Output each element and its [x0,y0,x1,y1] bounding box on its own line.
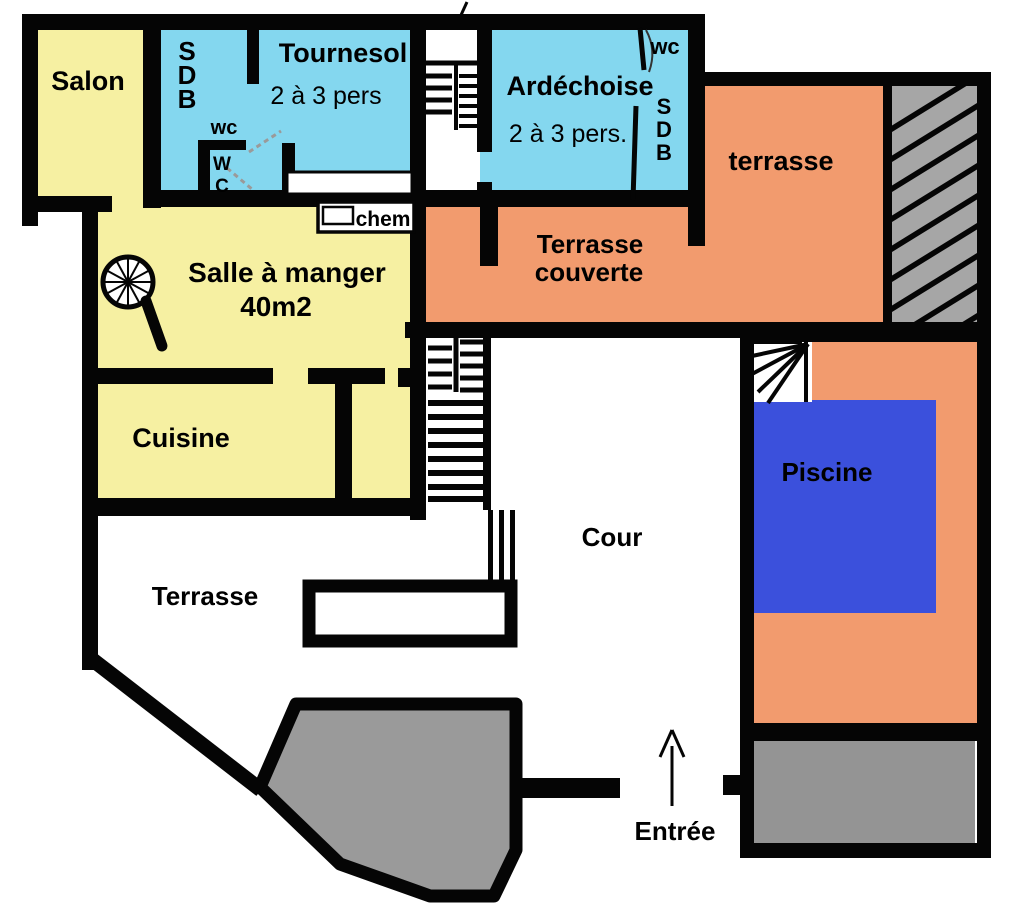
garage-area [753,741,975,843]
wall-left-outer [82,196,98,670]
wall-hatch-left [883,83,892,322]
wall-garage-bottom [740,843,990,858]
wall-wc-closet-top [198,140,246,150]
wall-pool-top [740,322,990,342]
swimming-pool [753,400,936,613]
wall-pantry-vertical [335,382,352,504]
wall-ardechoise-sdb-partition [633,106,636,200]
pool-label: Piscine [781,457,872,487]
wall-top [22,14,692,30]
bench-rectangle [309,586,511,641]
courtyard-staircase-icon [428,338,483,499]
wall-terrace-top [692,72,990,86]
floor-plan-canvas: Salon S D B wc W C Tournesol 2 à 3 pers … [0,0,1024,916]
dining-kitchen-area [96,196,412,502]
wall-garage-top [740,723,990,741]
wall-covered-terrace-stub [480,198,498,266]
wall-ardechoise-left-upper [477,22,492,152]
wc1-closet-w: W [213,154,231,175]
wall-entrance-stub [518,778,620,798]
tournesol-capacity: 2 à 3 pers [270,82,381,110]
wall-stair-right [483,335,491,510]
tournesol-label: Tournesol [279,38,408,68]
courtyard-label: Cour [582,522,643,552]
upper-terrace-label: terrasse [728,146,833,176]
wc2-label: wc [649,34,679,59]
floor-plan: Salon S D B wc W C Tournesol 2 à 3 pers … [0,0,1024,916]
top-stairwell-area [423,25,480,193]
entrance-label: Entrée [635,816,716,846]
pool-fan-staircase-icon [748,334,812,403]
wc1-label: wc [210,117,238,139]
salon-room-area [30,22,148,202]
fireplace-label: chem [356,208,411,231]
wall-diagonal-outer [89,657,261,790]
window-dining [287,172,412,194]
wall-garage-door-stub [723,775,741,795]
dining-room-label: Salle à manger [188,257,386,288]
wall-junction-stub [398,368,418,387]
wall-covered-terrace-bottom [405,322,745,338]
wall-kitchen-divider-a [90,368,273,384]
covered-terrace-label-line1: Terrasse [537,229,644,259]
wall-salon-right [143,14,161,208]
entry-steps-icon [488,510,515,582]
kitchen-label: Cuisine [132,423,230,453]
ardechoise-label: Ardéchoise [506,71,653,101]
upper-terrace-area [705,83,883,323]
wall-sdb-partition [247,22,259,84]
wall-kitchen-bottom [82,498,426,516]
wall-stairwell-left [410,20,426,520]
sdb2-letter-s: S [657,94,672,119]
sdb2-letter-b: B [656,140,672,165]
wall-pool-left [740,322,754,858]
wall-kitchen-divider-b [308,368,385,384]
wall-ardechoise-right [688,14,705,246]
driveway-paving [260,704,516,896]
wc1-closet-c: C [215,176,229,197]
sdb2-letter-d: D [656,117,672,142]
lower-terrace-label: Terrasse [152,581,259,611]
sdb1-letter-b: B [178,84,197,114]
wall-salon-left [22,14,38,226]
dining-room-area: 40m2 [240,291,312,322]
ardechoise-capacity: 2 à 3 pers. [509,120,627,148]
wall-salon-bottom [28,196,112,212]
covered-terrace-label-line2: couverte [535,257,643,287]
salon-label: Salon [51,66,125,96]
entrance-arrow-icon [660,730,684,806]
